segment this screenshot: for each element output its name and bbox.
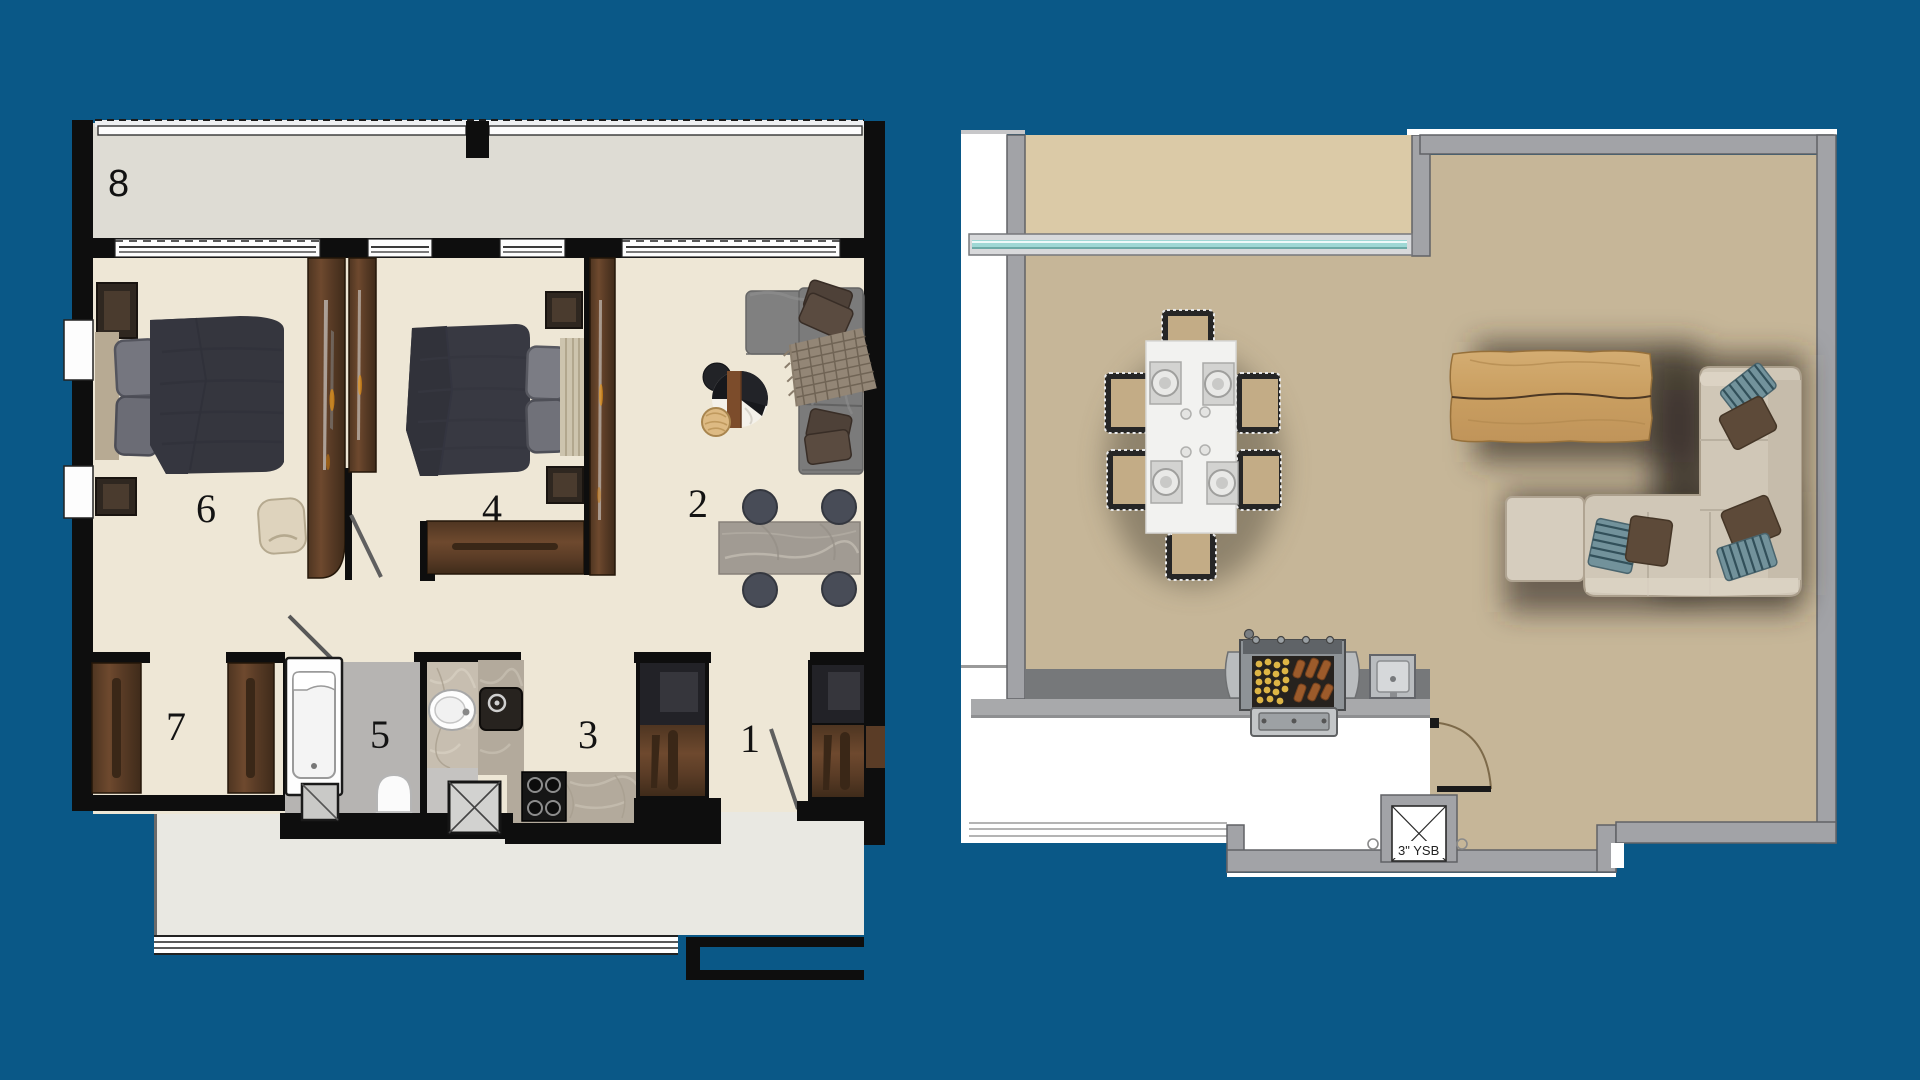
- svg-text:1: 1: [740, 716, 760, 761]
- svg-text:3: 3: [578, 712, 598, 757]
- svg-text:5: 5: [370, 712, 390, 757]
- svg-text:7: 7: [166, 704, 186, 749]
- svg-text:8: 8: [108, 163, 129, 205]
- svg-text:3" YSB: 3" YSB: [1398, 843, 1439, 858]
- svg-text:2: 2: [688, 481, 708, 526]
- svg-text:6: 6: [196, 486, 216, 531]
